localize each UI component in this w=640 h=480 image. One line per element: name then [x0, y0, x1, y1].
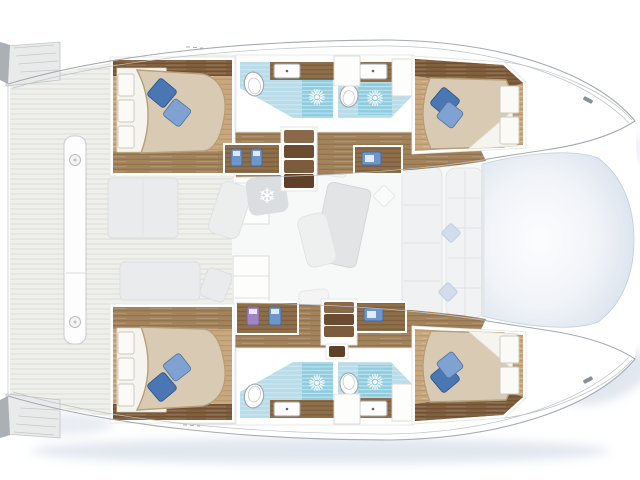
- plank-screw-icon: [70, 317, 81, 328]
- stern-gangplank: [64, 136, 86, 344]
- port-hull-interior: [110, 303, 526, 425]
- transom-platform: [0, 394, 60, 438]
- corridor-counter: [356, 302, 406, 332]
- corridor-counter: [236, 302, 298, 334]
- corridor-counter: [224, 144, 280, 174]
- sunpad: [120, 262, 200, 300]
- starboard-hull-interior: [110, 55, 526, 177]
- catamaran-floorplan: ❄: [0, 0, 640, 480]
- companionway-steps: [281, 127, 317, 191]
- bow-trampoline: [482, 153, 634, 327]
- plank-screw-icon: [70, 155, 81, 166]
- transom-platform: [0, 42, 60, 86]
- snowflake-icon: ❄: [258, 185, 276, 208]
- floorplan-canvas: ❄: [0, 0, 640, 480]
